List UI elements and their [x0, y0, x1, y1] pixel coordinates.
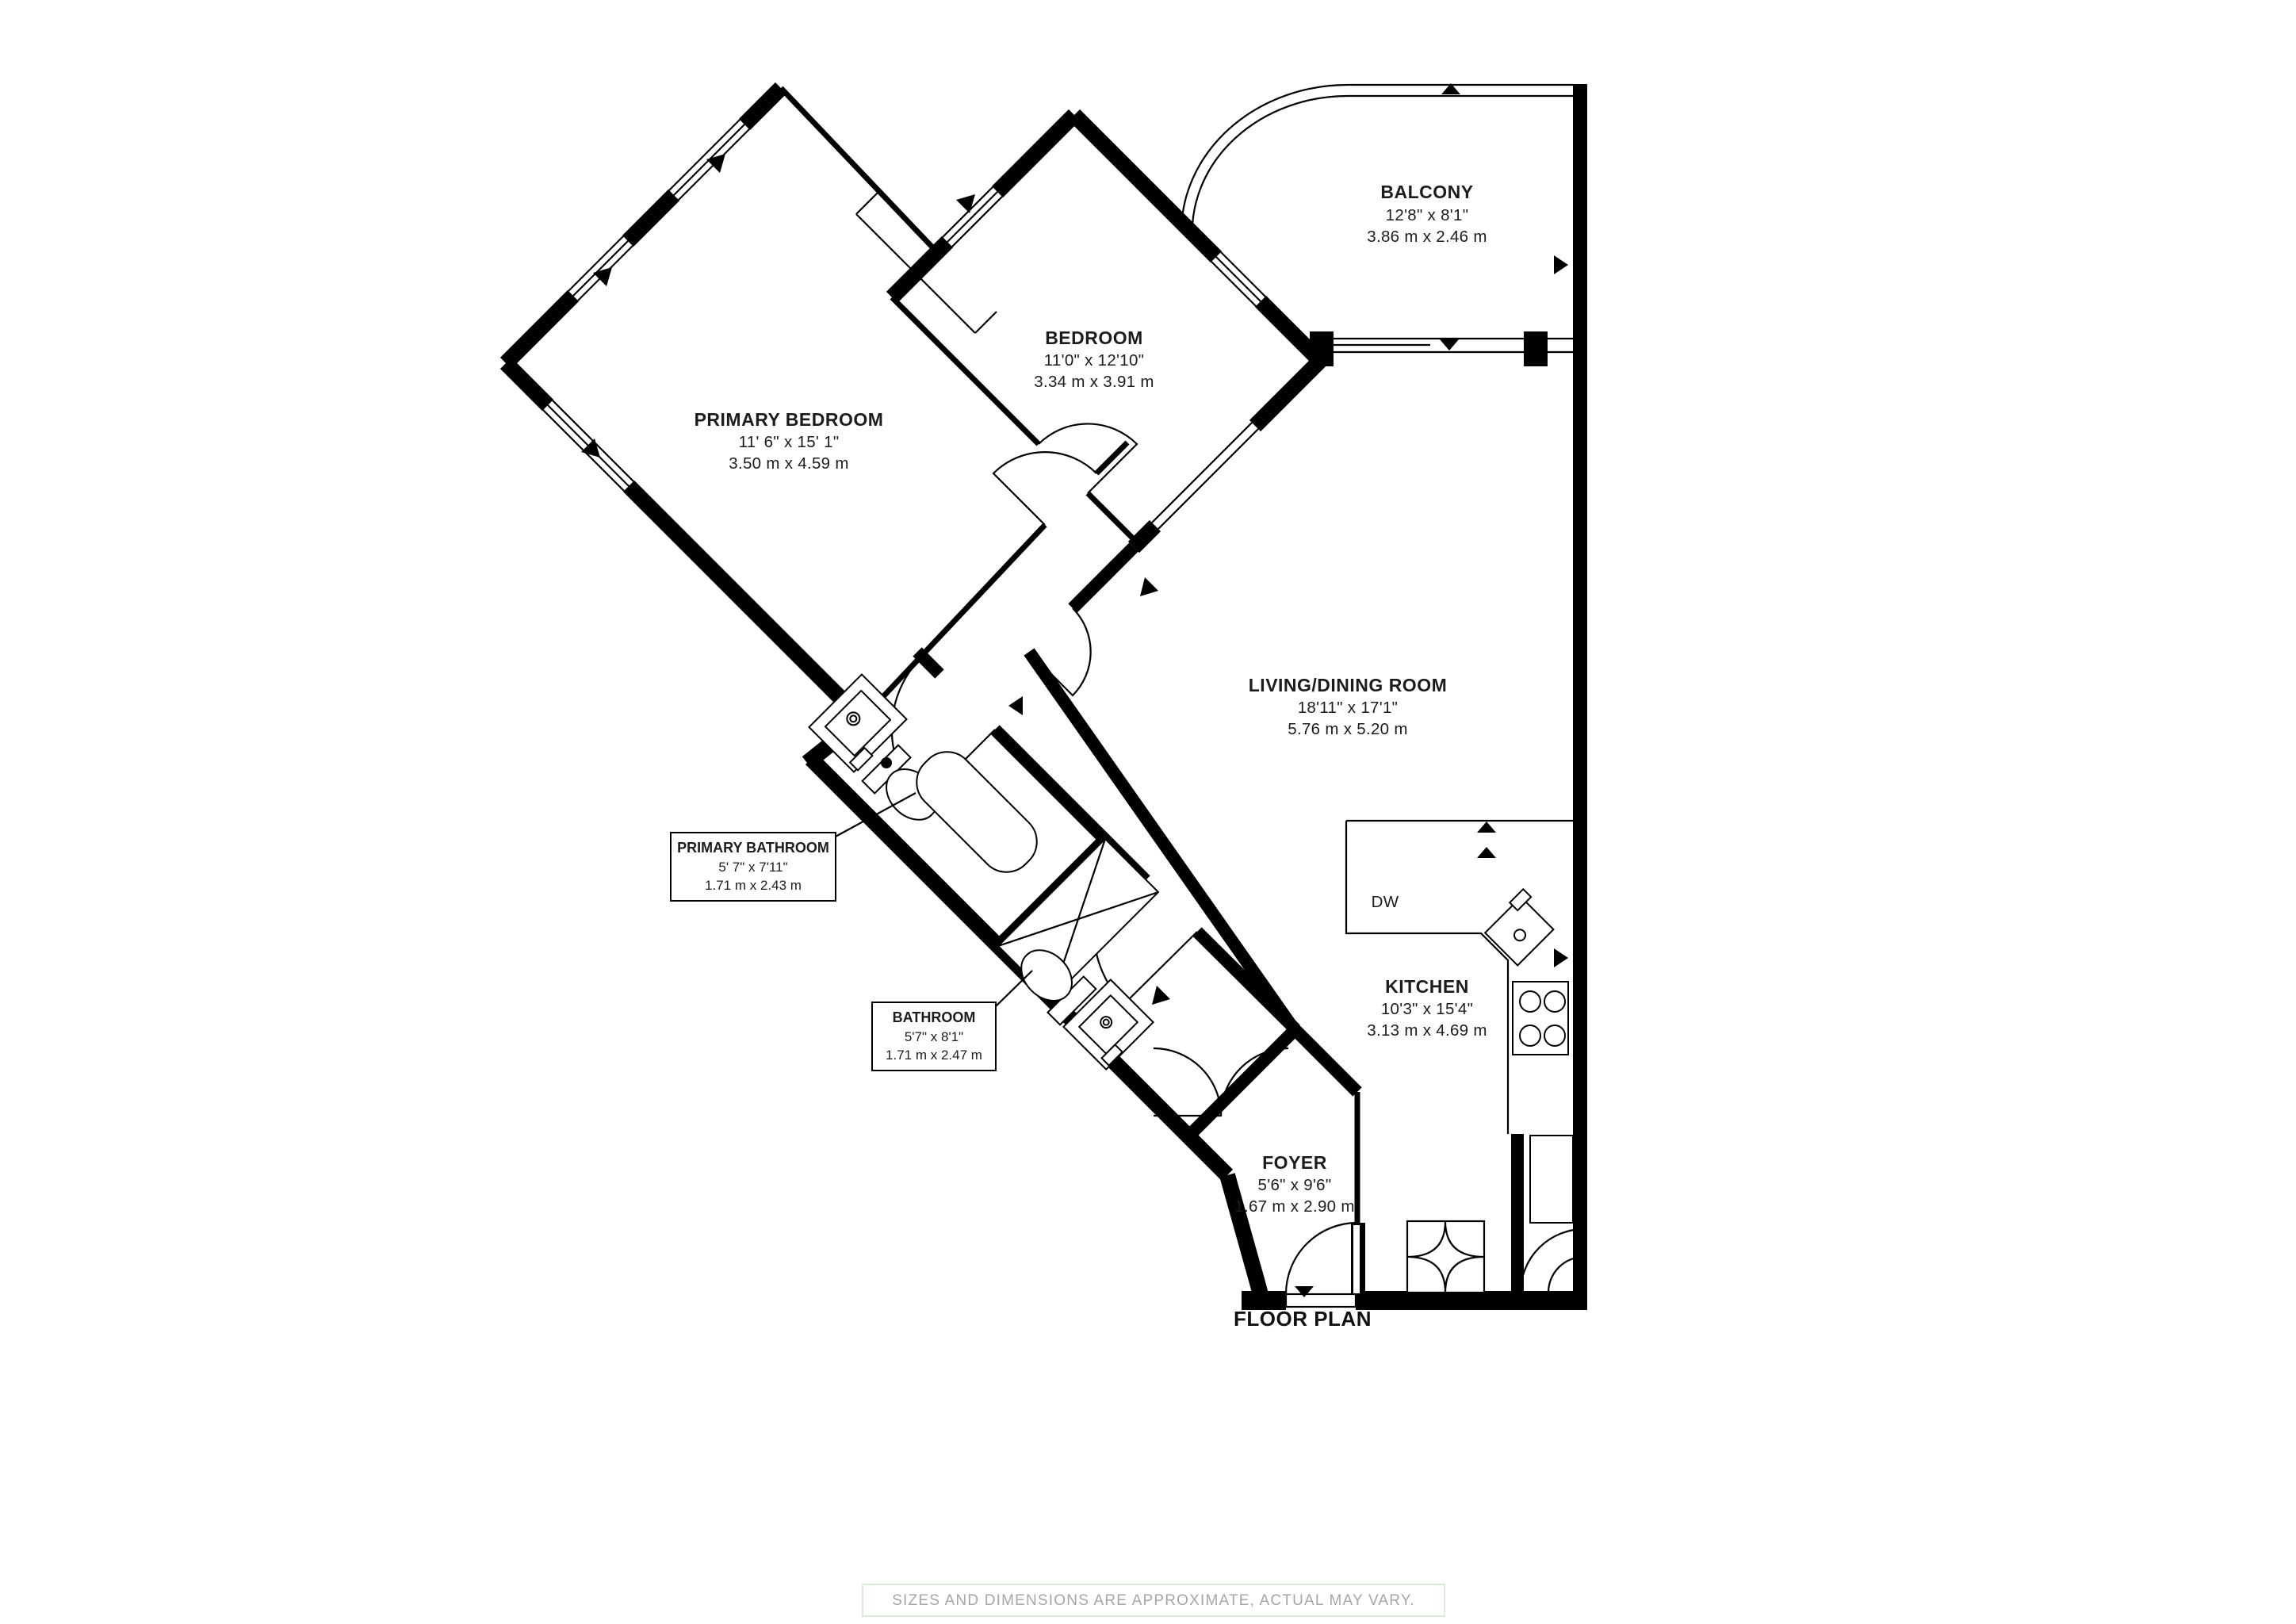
foyer-structure [1154, 1048, 1584, 1307]
door-stop [881, 757, 892, 768]
living-dining-label: LIVING/DINING ROOM 18'11" x 17'1" 5.76 m… [1249, 675, 1448, 738]
living-room-door-arc [1029, 608, 1091, 695]
living-dining-metric: 5.76 m x 5.20 m [1288, 720, 1407, 738]
floor-plan-drawing: BALCONY 12'8" x 8'1" 3.86 m x 2.46 m BED… [0, 0, 2296, 1624]
balcony-curved-railing-inner [1192, 96, 1348, 239]
kitchen-imperial: 10'3" x 15'4" [1381, 1000, 1473, 1018]
primary-bathroom-name: PRIMARY BATHROOM [677, 840, 829, 856]
entry-threshold [1286, 1294, 1356, 1307]
foyer-label: FOYER 5'6" x 9'6" 1.67 m x 2.90 m [1234, 1152, 1354, 1216]
dishwasher-label: DW [1372, 893, 1399, 911]
balcony-curved-railing [1181, 85, 1348, 232]
primary-bedroom-name: PRIMARY BEDROOM [695, 409, 884, 430]
bathroom-fixtures [998, 839, 1158, 1070]
living-dining-name: LIVING/DINING ROOM [1249, 675, 1448, 695]
kitchen-name: KITCHEN [1385, 976, 1469, 997]
balcony-top-railing [1348, 85, 1574, 96]
bedroom-label: BEDROOM 11'0" x 12'10" 3.34 m x 3.91 m [1034, 327, 1154, 391]
primary-bedroom-imperial: 11' 6" x 15' 1" [739, 433, 840, 451]
stove [1513, 982, 1568, 1055]
bedroom-metric: 3.34 m x 3.91 m [1034, 373, 1154, 391]
kitchen-metric: 3.13 m x 4.69 m [1367, 1021, 1487, 1040]
foyer-metric: 1.67 m x 2.90 m [1234, 1197, 1354, 1216]
entry-door-arc [1286, 1223, 1357, 1294]
bathroom-metric: 1.71 m x 2.47 m [886, 1048, 982, 1063]
bedroom-name: BEDROOM [1045, 327, 1143, 348]
primary-bathroom-callout: PRIMARY BATHROOM 5' 7" x 7'11" 1.71 m x … [671, 793, 916, 901]
living-dining-imperial: 18'11" x 17'1" [1298, 699, 1399, 717]
window [1548, 339, 1573, 352]
bathroom-callout: BATHROOM 5'7" x 8'1" 1.71 m x 2.47 m [872, 971, 1032, 1071]
primary-bathroom-imperial: 5' 7" x 7'11" [718, 860, 787, 875]
exterior-walls [506, 84, 1587, 1310]
kitchen-label: KITCHEN 10'3" x 15'4" 3.13 m x 4.69 m [1367, 976, 1487, 1040]
primary-bedroom-label: PRIMARY BEDROOM 11' 6" x 15' 1" 3.50 m x… [695, 409, 884, 473]
room-labels: BALCONY 12'8" x 8'1" 3.86 m x 2.46 m BED… [695, 182, 1487, 1216]
primary-bedroom-metric: 3.50 m x 4.59 m [729, 454, 848, 473]
window [1211, 252, 1265, 306]
foyer-name: FOYER [1262, 1152, 1327, 1173]
primary-bathroom-metric: 1.71 m x 2.43 m [705, 878, 802, 893]
cabinet [1530, 1136, 1573, 1223]
primary-bedroom-walls [781, 88, 1127, 719]
bathroom-imperial: 5'7" x 8'1" [905, 1029, 963, 1044]
bedroom-door-arc [1039, 423, 1137, 493]
bathroom-name: BATHROOM [893, 1009, 976, 1025]
balcony-imperial: 12'8" x 8'1" [1386, 206, 1469, 224]
interior-glass [1152, 423, 1258, 529]
balcony-label: BALCONY 12'8" x 8'1" 3.86 m x 2.46 m [1367, 182, 1487, 246]
floor-plan-caption: FLOOR PLAN [1234, 1307, 1372, 1331]
floor-plan-page: BALCONY 12'8" x 8'1" 3.86 m x 2.46 m BED… [0, 0, 2296, 1624]
kitchen-sink [1483, 889, 1559, 965]
balcony-structure [1074, 85, 1574, 366]
balcony-metric: 3.86 m x 2.46 m [1367, 228, 1487, 246]
balcony-sliding-door [1334, 339, 1524, 352]
entry-door-leaf [1353, 1224, 1360, 1294]
balcony-name: BALCONY [1380, 182, 1473, 202]
disclaimer: SIZES AND DIMENSIONS ARE APPROXIMATE, AC… [863, 1584, 1445, 1616]
bifold-closet [1407, 1221, 1484, 1293]
foyer-imperial: 5'6" x 9'6" [1258, 1176, 1332, 1194]
closet-door-arc [1221, 1048, 1288, 1116]
bedroom-imperial: 11'0" x 12'10" [1044, 351, 1145, 370]
disclaimer-text: SIZES AND DIMENSIONS ARE APPROXIMATE, AC… [892, 1592, 1415, 1609]
primary-bedroom-door-arc [993, 452, 1096, 525]
